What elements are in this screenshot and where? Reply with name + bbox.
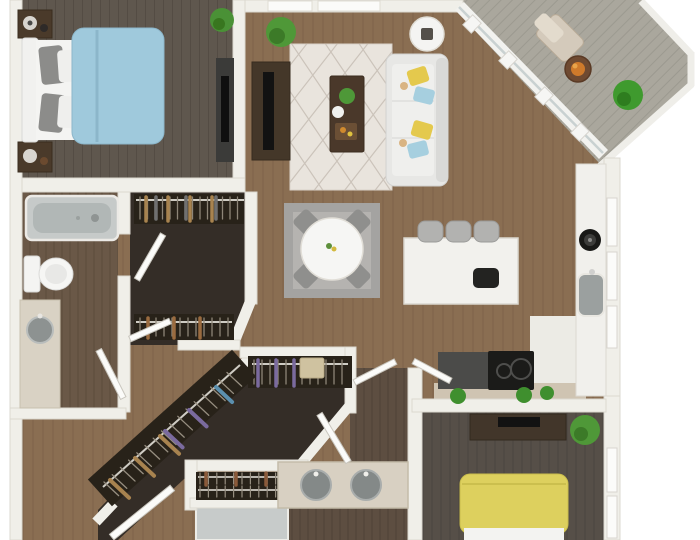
centerpiece-flower bbox=[332, 247, 337, 252]
bathtub-faucet bbox=[91, 214, 99, 222]
closet1-right-wall bbox=[245, 192, 257, 304]
bathtub-drain bbox=[76, 216, 80, 220]
nightstand-2-cup bbox=[40, 157, 48, 165]
bedroom1-bottom-wall bbox=[22, 178, 245, 192]
bed1-duvet bbox=[72, 28, 164, 144]
bar-stool-1 bbox=[418, 221, 443, 242]
vanity2-faucet-1 bbox=[314, 472, 319, 477]
bar-stool-2 bbox=[446, 221, 471, 242]
planter-bush-1 bbox=[450, 388, 466, 404]
left-wall bbox=[10, 0, 22, 540]
planter-bush-2 bbox=[516, 387, 532, 403]
coffee-table-plate bbox=[332, 106, 344, 118]
bedroom2-tv bbox=[498, 417, 540, 427]
vanity1-faucet bbox=[38, 314, 43, 319]
shower-floor bbox=[196, 506, 288, 540]
tray-food-1 bbox=[340, 127, 346, 133]
bath1-closet-wall-upper bbox=[118, 192, 130, 234]
coffee-table-tray bbox=[335, 123, 357, 140]
bath2-bedroom2-wall bbox=[408, 368, 422, 540]
tv-living bbox=[263, 72, 274, 150]
island-sink bbox=[473, 268, 499, 288]
bathtub-basin bbox=[33, 203, 111, 233]
nightstand-2-clock bbox=[23, 149, 37, 163]
bedroom2-top-wall bbox=[412, 399, 606, 412]
floorplan-svg bbox=[0, 0, 700, 540]
kitchen-faucet bbox=[589, 269, 595, 275]
plant-bedroom1-shade bbox=[213, 18, 225, 30]
side-table-item bbox=[421, 28, 433, 40]
closet2-basket bbox=[300, 358, 324, 378]
sofa-back bbox=[436, 58, 448, 182]
bed2-sheet bbox=[464, 528, 564, 540]
bedroom1-tv bbox=[221, 76, 229, 142]
vanity2 bbox=[278, 462, 408, 508]
centerpiece-leaf bbox=[326, 243, 332, 249]
bedroom1-living-wall bbox=[233, 0, 245, 192]
bath1-bottom-wall bbox=[10, 408, 126, 419]
bar-stool-3 bbox=[474, 221, 499, 242]
closet1-bottom-wall bbox=[178, 340, 240, 350]
bedroom2-window-2 bbox=[607, 496, 617, 538]
toilet-tank bbox=[24, 256, 40, 292]
toilet-seat bbox=[45, 264, 67, 284]
plant-balcony-shade bbox=[617, 92, 631, 106]
kitchen-window-3 bbox=[607, 306, 617, 348]
nightstand-1-clock-dot bbox=[28, 21, 33, 26]
bedroom2-window-1 bbox=[607, 448, 617, 492]
sofa-snack-1 bbox=[400, 82, 408, 90]
plant-bedroom2-shade bbox=[574, 427, 588, 441]
coffee-table-plant bbox=[339, 88, 355, 104]
fire-pit-spark bbox=[573, 64, 578, 69]
dark-cabinet bbox=[438, 352, 488, 389]
kitchen-window-2 bbox=[607, 252, 617, 300]
vanity1-sink bbox=[27, 317, 53, 343]
living-window-sill-2 bbox=[318, 1, 380, 11]
kitchen-window-1 bbox=[607, 198, 617, 246]
tray-food-2 bbox=[348, 132, 353, 137]
vanity2-faucet-2 bbox=[364, 472, 369, 477]
fire-pit-coals bbox=[571, 62, 585, 76]
living-window-sill-1 bbox=[268, 1, 312, 11]
planter-bush-3 bbox=[540, 386, 554, 400]
kitchen-sink bbox=[578, 274, 604, 316]
plant-living-shade bbox=[269, 28, 285, 44]
sofa-snack-2 bbox=[399, 139, 407, 147]
stove-burner-dot bbox=[588, 238, 592, 242]
floorplan-image bbox=[0, 0, 700, 540]
nightstand-1-cup bbox=[40, 24, 48, 32]
kitchen-island bbox=[404, 238, 518, 304]
bed1-headboard bbox=[22, 38, 38, 142]
